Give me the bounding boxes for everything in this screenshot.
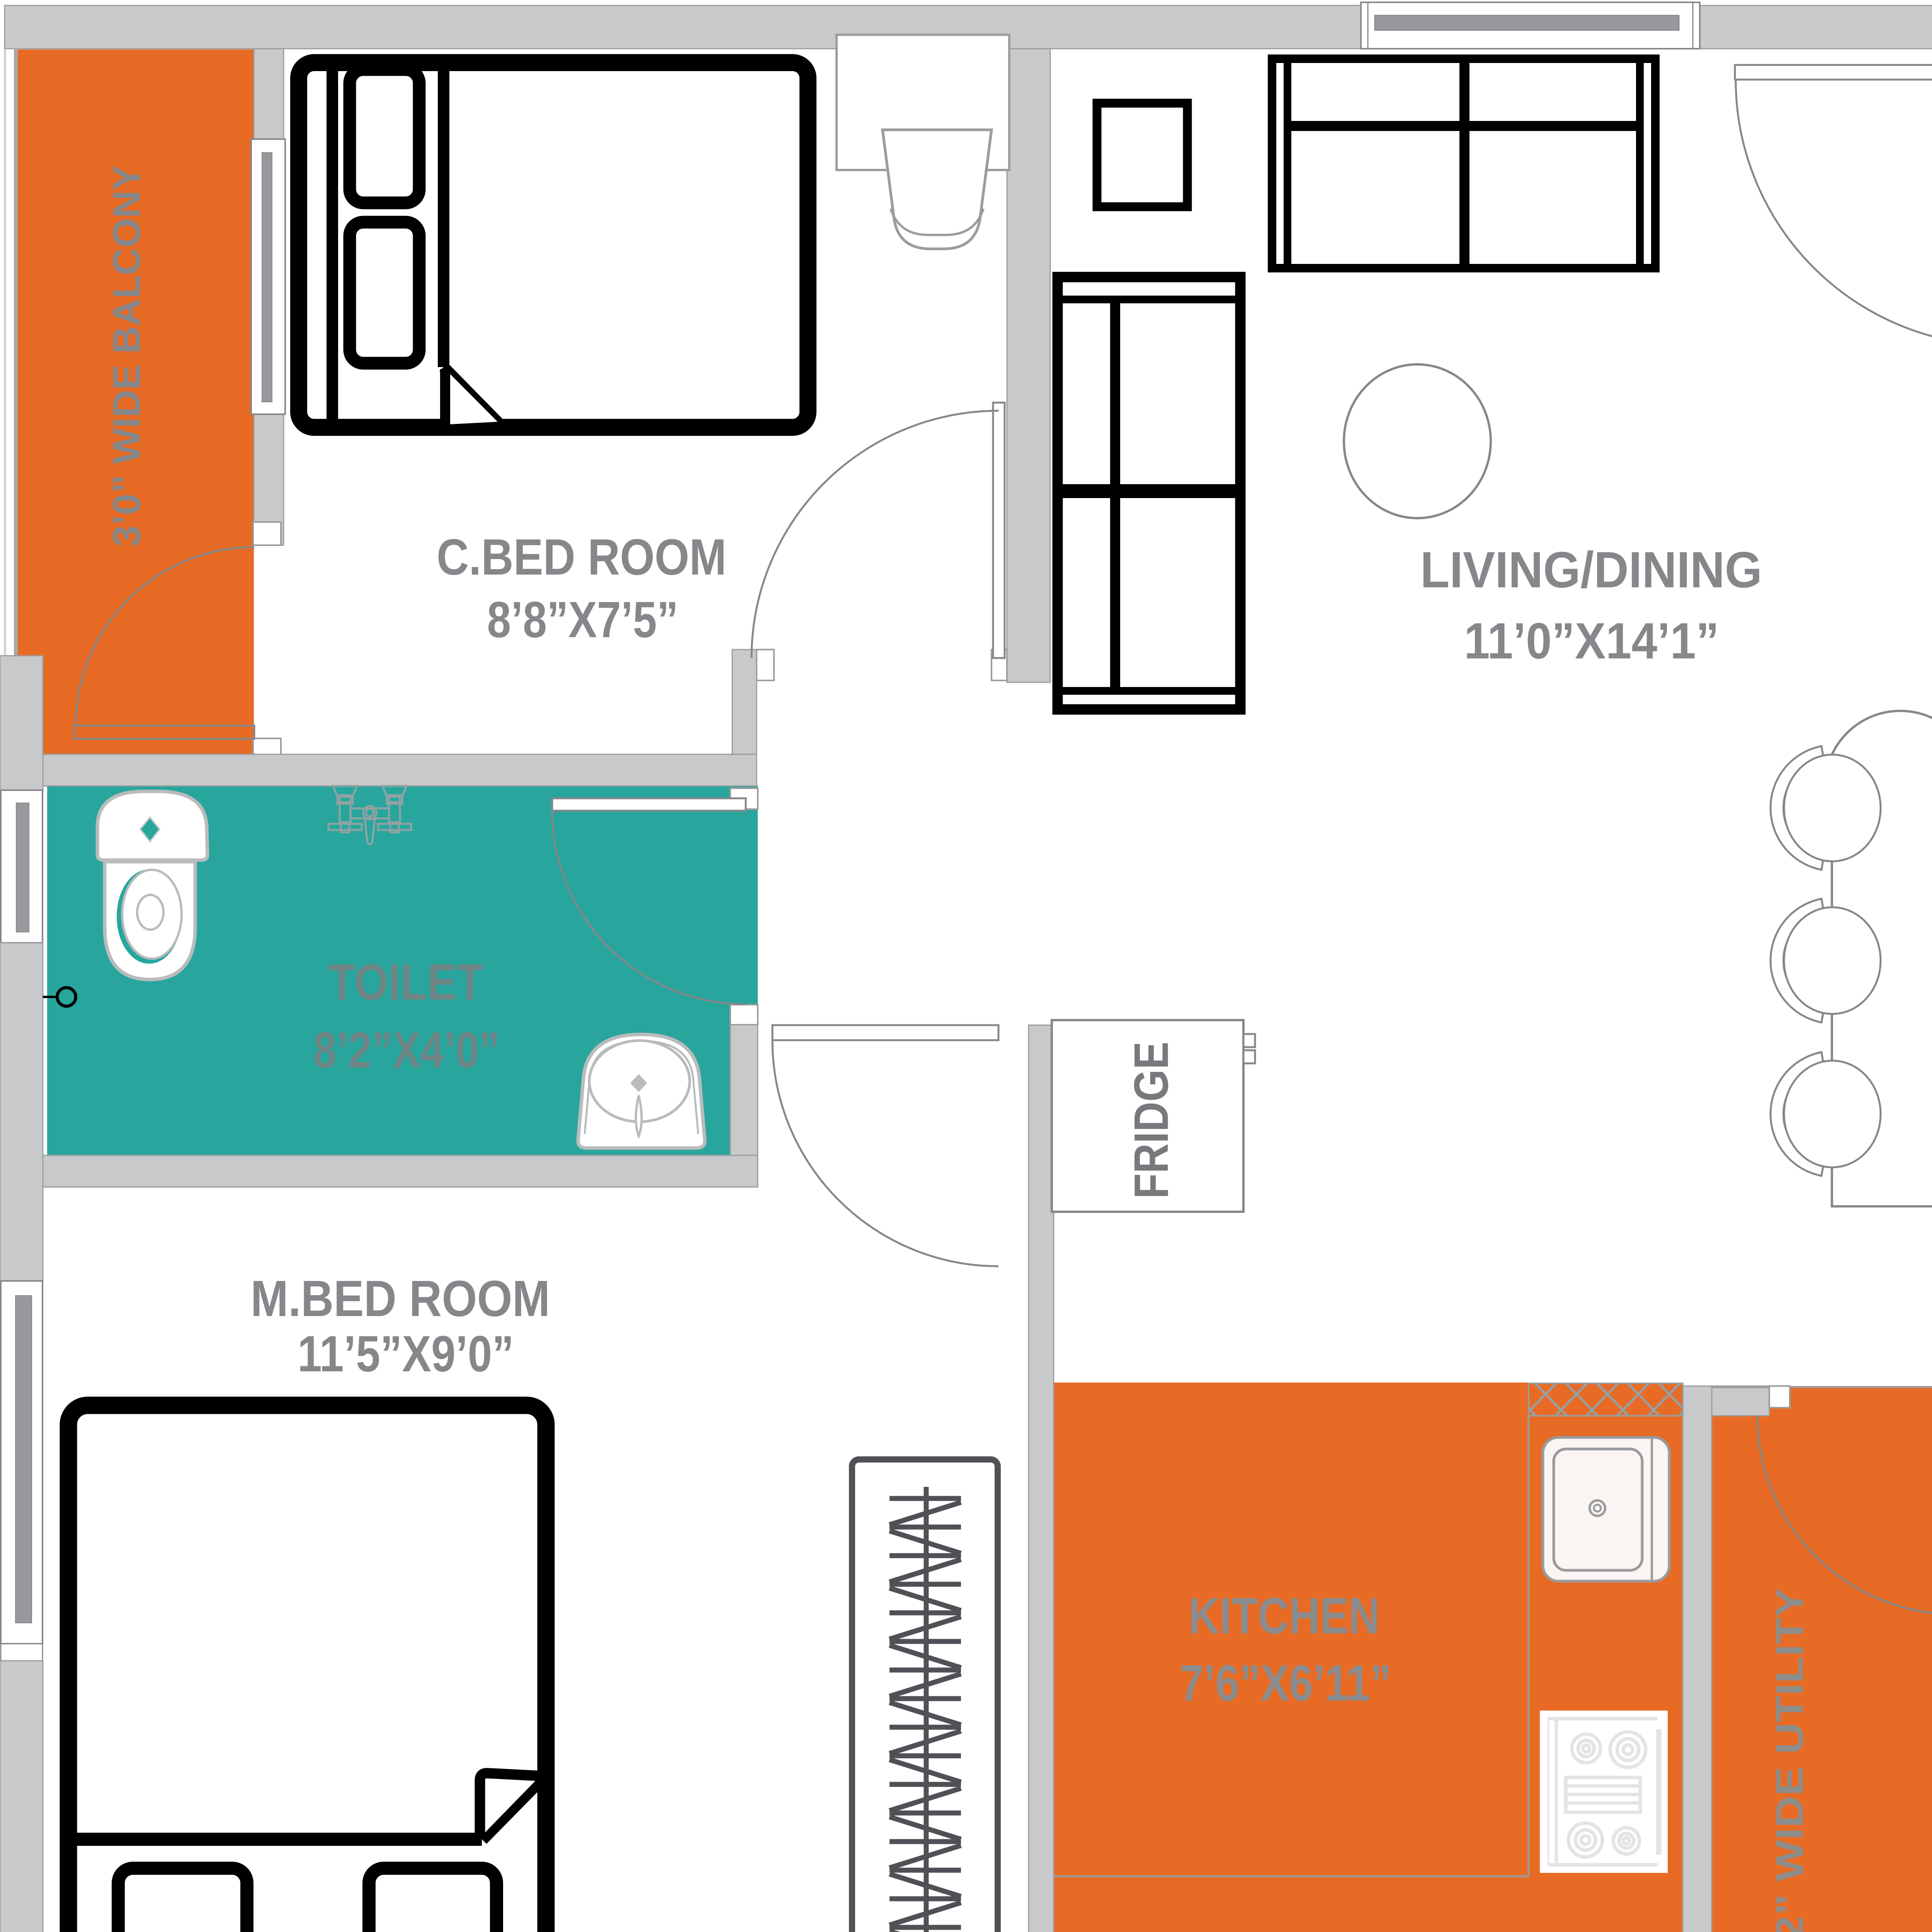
svg-text:KITCHEN: KITCHEN [1189, 1587, 1380, 1644]
svg-text:LIVING/DINING: LIVING/DINING [1420, 541, 1762, 598]
svg-text:3’2” WIDE UTILITY: 3’2” WIDE UTILITY [1768, 1588, 1811, 1932]
svg-text:8’8”X7’5”: 8’8”X7’5” [487, 591, 679, 648]
svg-text:11’0”X14’1”: 11’0”X14’1” [1464, 612, 1719, 669]
svg-text:8’2”X4’0”: 8’2”X4’0” [313, 1022, 500, 1078]
svg-text:C.BED ROOM: C.BED ROOM [437, 529, 726, 585]
svg-text:TOILET: TOILET [328, 954, 483, 1010]
svg-text:7’6”X6’11”: 7’6”X6’11” [1180, 1655, 1391, 1711]
svg-text:M.BED ROOM: M.BED ROOM [251, 1270, 550, 1327]
svg-text:11’5”X9’0”: 11’5”X9’0” [298, 1325, 514, 1382]
svg-text:3’0” WIDE BALCONY: 3’0” WIDE BALCONY [105, 165, 148, 547]
svg-text:FRIDGE: FRIDGE [1125, 1042, 1179, 1199]
